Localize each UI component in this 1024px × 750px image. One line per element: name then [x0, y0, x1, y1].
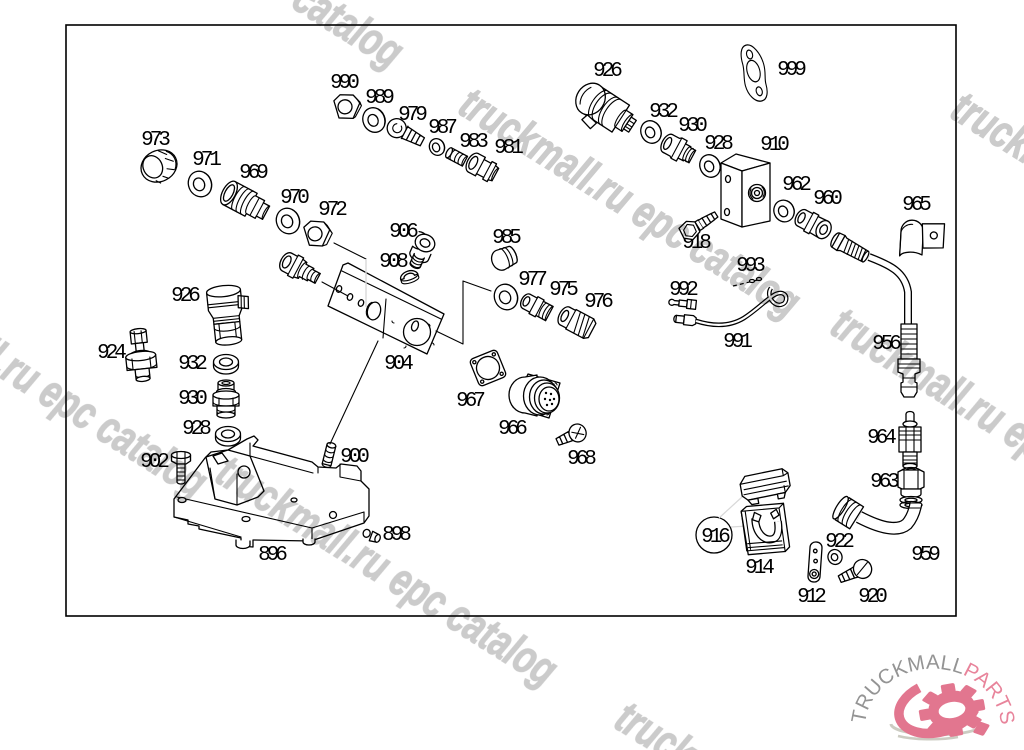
svg-text:928: 928: [182, 418, 211, 441]
svg-text:910: 910: [760, 134, 789, 157]
svg-text:991: 991: [723, 331, 752, 354]
svg-text:960: 960: [813, 188, 842, 211]
svg-text:968: 968: [567, 448, 596, 471]
svg-text:912: 912: [797, 586, 826, 609]
svg-text:930: 930: [678, 115, 707, 138]
svg-text:924: 924: [97, 342, 126, 365]
svg-text:970: 970: [280, 187, 309, 210]
svg-text:990: 990: [330, 72, 359, 95]
svg-text:926: 926: [593, 60, 622, 83]
svg-text:989: 989: [365, 87, 394, 110]
svg-text:973: 973: [141, 129, 170, 152]
svg-text:975: 975: [549, 279, 578, 302]
svg-text:992: 992: [669, 279, 698, 302]
svg-text:971: 971: [192, 149, 221, 172]
svg-text:906: 906: [389, 221, 418, 244]
svg-text:908: 908: [379, 251, 408, 274]
svg-text:932: 932: [178, 353, 207, 376]
svg-text:930: 930: [178, 388, 207, 411]
svg-text:926: 926: [171, 285, 200, 308]
svg-text:963: 963: [870, 471, 899, 494]
svg-text:916: 916: [701, 526, 730, 549]
svg-text:959: 959: [911, 544, 940, 567]
svg-text:969: 969: [239, 162, 268, 185]
svg-text:914: 914: [745, 557, 774, 580]
svg-text:999: 999: [777, 59, 806, 82]
svg-text:904: 904: [384, 353, 413, 376]
svg-text:972: 972: [318, 199, 347, 222]
svg-text:967: 967: [456, 390, 484, 413]
svg-text:977: 977: [518, 269, 546, 292]
svg-text:976: 976: [584, 291, 613, 314]
svg-text:928: 928: [704, 133, 733, 156]
svg-text:920: 920: [858, 586, 887, 609]
svg-text:966: 966: [498, 418, 527, 441]
svg-text:965: 965: [902, 194, 931, 217]
svg-text:922: 922: [825, 531, 854, 554]
svg-text:964: 964: [867, 427, 896, 450]
svg-text:896: 896: [258, 544, 287, 567]
svg-text:962: 962: [782, 174, 811, 197]
svg-text:932: 932: [649, 101, 678, 124]
